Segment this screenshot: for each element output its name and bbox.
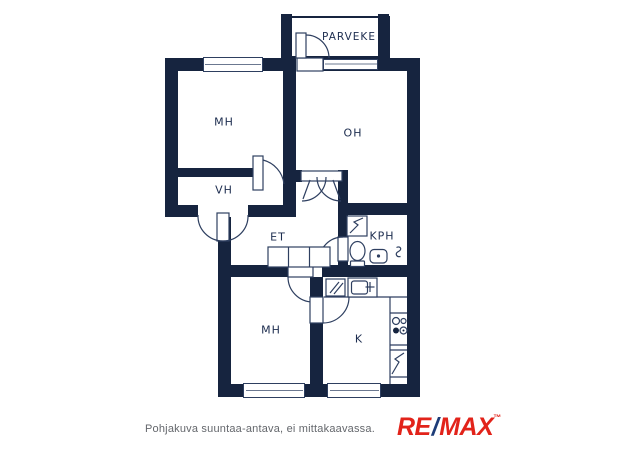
room-label-mh-lower: MH xyxy=(261,324,281,337)
bedroom2-door-arc xyxy=(288,265,313,302)
dishwasher-symbol xyxy=(326,279,345,296)
closet-swing-door-arc xyxy=(198,213,248,241)
toilet-symbol xyxy=(350,242,365,267)
washbasin-symbol xyxy=(370,250,387,264)
fridge-symbol xyxy=(392,353,404,374)
room-label-et: ET xyxy=(270,231,286,244)
plan-symbols xyxy=(0,0,640,452)
room-label-mh-upper: MH xyxy=(214,116,234,129)
bedroom1-door-arc xyxy=(253,156,284,190)
logo-re: RE xyxy=(397,413,431,441)
disclaimer-text: Pohjakuva suuntaa-antava, ei mittakaavas… xyxy=(145,423,375,435)
floorplan-page: PARVEKE MH OH VH ET KPH MH K Pohjakuva s… xyxy=(0,0,640,452)
remax-logo: RE/MAX™ xyxy=(397,413,501,442)
logo-slash: / xyxy=(431,413,439,441)
wardrobe-symbol xyxy=(268,247,330,267)
room-label-oh: OH xyxy=(344,127,363,140)
room-label-kph: KPH xyxy=(369,230,394,243)
kitchen-sink-symbol xyxy=(348,278,377,297)
logo-max: MAX xyxy=(439,413,493,441)
kitchen-counter-lines xyxy=(324,297,407,384)
room-label-vh: VH xyxy=(215,184,233,197)
kitchen-door-arc xyxy=(310,297,349,323)
logo-trademark: ™ xyxy=(493,413,501,422)
livingroom-double-door-arcs xyxy=(301,171,342,201)
stove-symbol xyxy=(393,318,408,335)
duct-symbol xyxy=(347,216,367,236)
drain-symbol xyxy=(396,247,400,257)
room-label-k: K xyxy=(355,333,363,346)
room-label-parveke: PARVEKE xyxy=(322,31,376,43)
